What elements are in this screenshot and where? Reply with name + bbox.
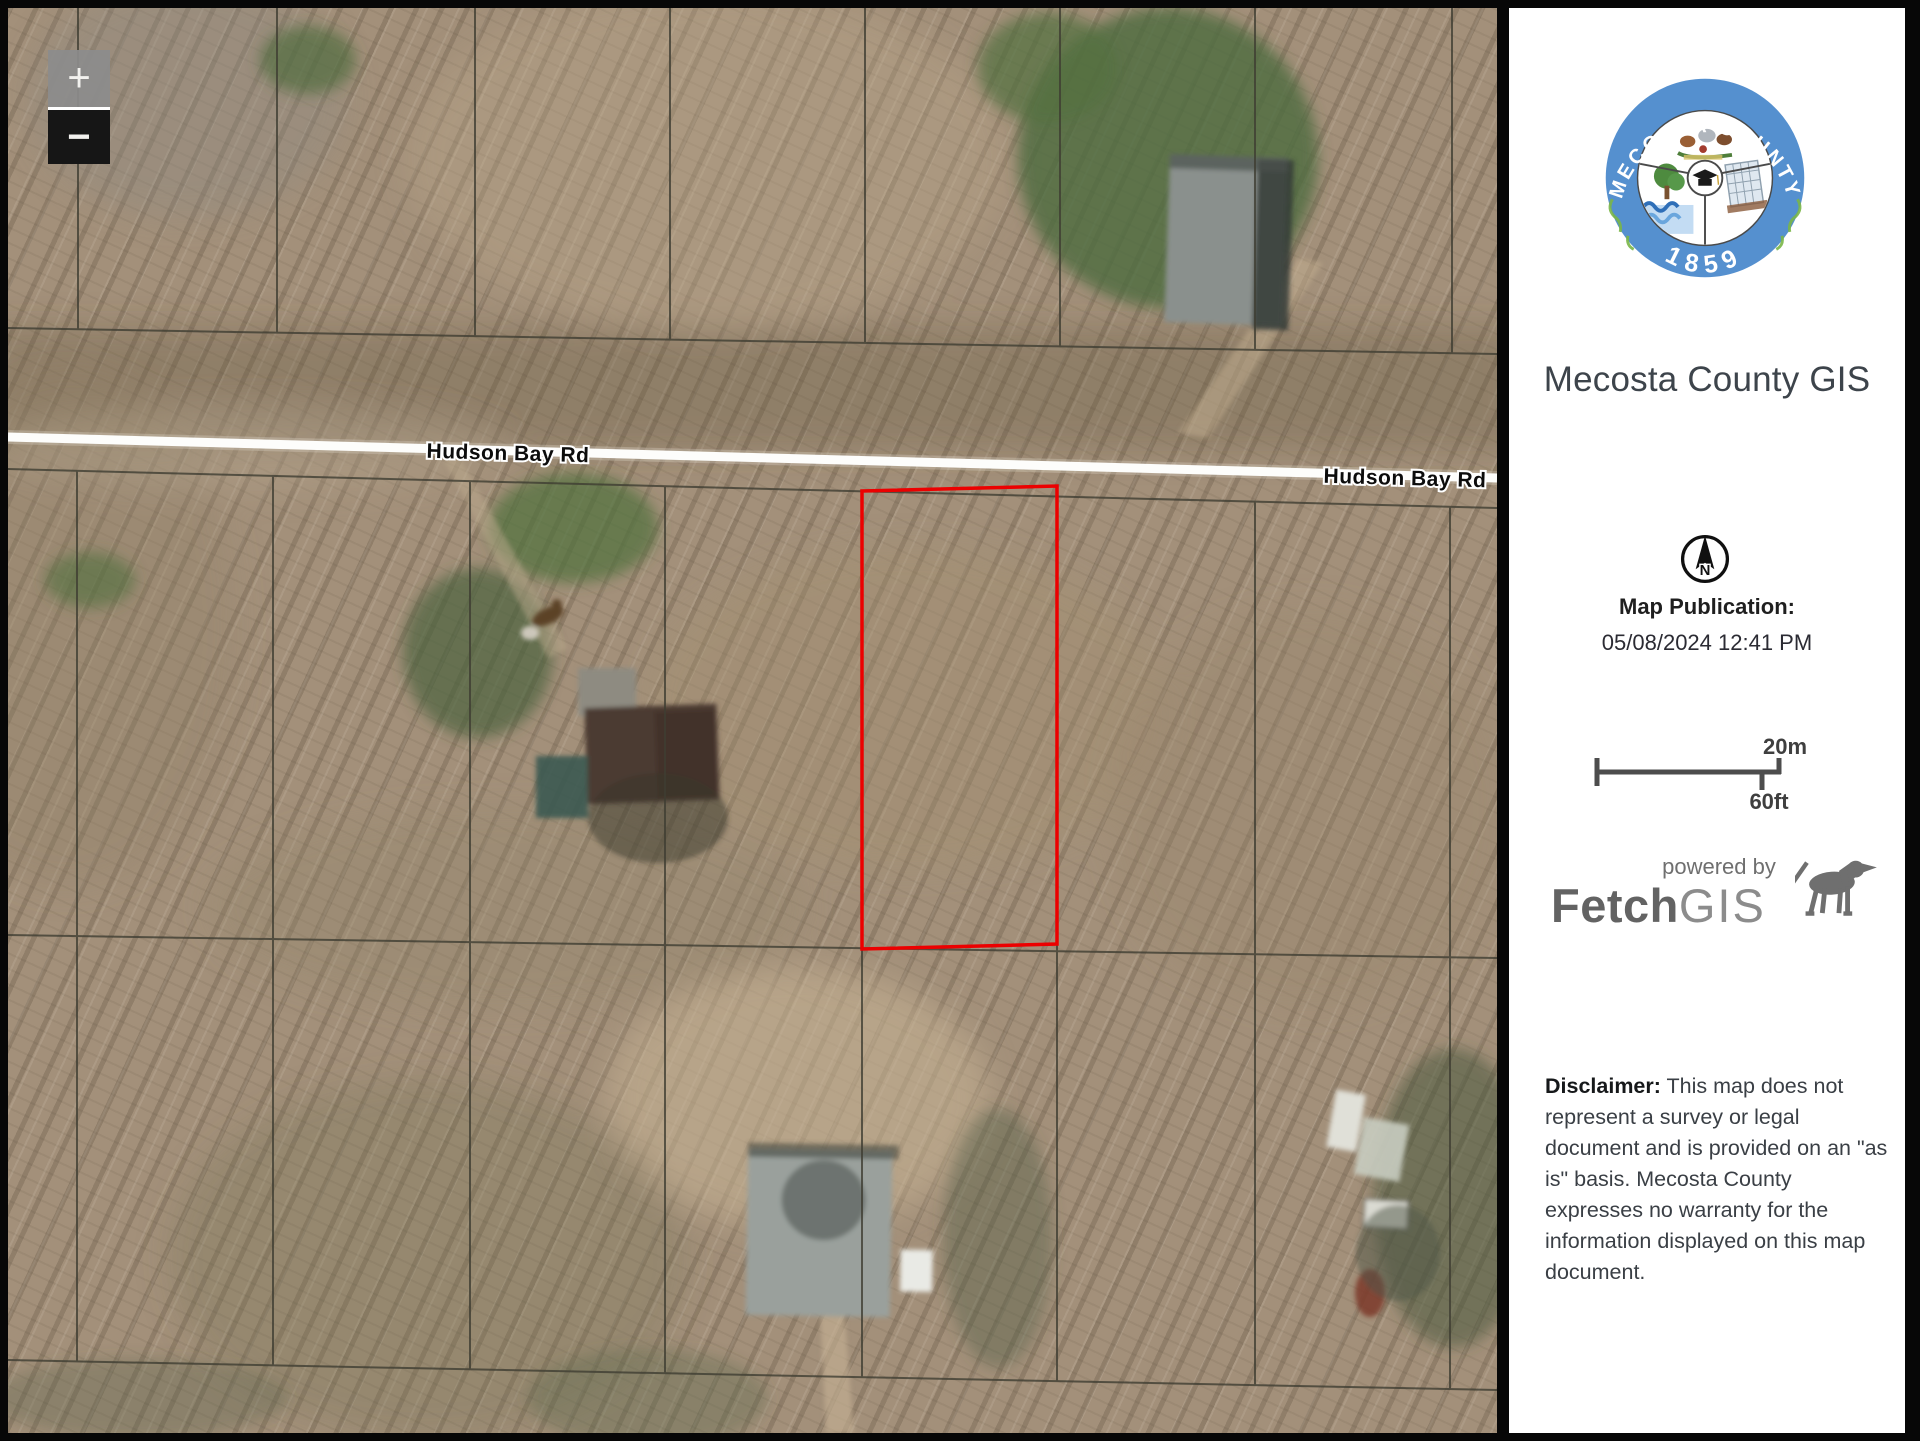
road-label-west: Hudson Bay Rd — [426, 440, 589, 468]
zoom-out-button[interactable]: − — [48, 107, 110, 164]
scale-metric-label: 20m — [1763, 734, 1807, 759]
disclaimer-body: This map does not represent a survey or … — [1545, 1074, 1887, 1284]
publication-datetime: 05/08/2024 12:41 PM — [1509, 630, 1905, 656]
map-canvas[interactable]: Hudson Bay Rd Hudson Bay Rd + − — [8, 8, 1497, 1433]
county-seal-logo: MECOSTA COUNTY 1859 — [1599, 72, 1811, 284]
fetchgis-branding: powered by FetchGIS — [1509, 846, 1905, 941]
app-title: Mecosta County GIS — [1509, 360, 1905, 400]
brand-fetch: Fetch — [1551, 879, 1679, 932]
powered-by-text: powered by — [1639, 854, 1799, 880]
zoom-in-button[interactable]: + — [48, 50, 110, 107]
sidebar: MECOSTA COUNTY 1859 Mecosta County GIS N… — [1509, 8, 1905, 1433]
fetchgis-wordmark: FetchGIS — [1551, 878, 1766, 933]
disclaimer-label: Disclaimer: — [1545, 1074, 1661, 1098]
brand-gis: GIS — [1679, 879, 1766, 932]
dog-icon — [1795, 852, 1883, 932]
scale-bar: 20m 60ft — [1509, 730, 1905, 815]
disclaimer-text: Disclaimer: This map does not represent … — [1545, 1071, 1895, 1288]
building-north — [1164, 154, 1294, 330]
north-arrow-icon: N — [1677, 531, 1733, 587]
road-label-east: Hudson Bay Rd — [1323, 465, 1486, 493]
zoom-control: + − — [48, 50, 110, 164]
scale-imperial-label: 60ft — [1749, 789, 1789, 814]
north-label: N — [1700, 562, 1711, 579]
publication-label: Map Publication: — [1509, 594, 1905, 620]
map-overlay: Hudson Bay Rd Hudson Bay Rd — [8, 8, 1497, 1433]
